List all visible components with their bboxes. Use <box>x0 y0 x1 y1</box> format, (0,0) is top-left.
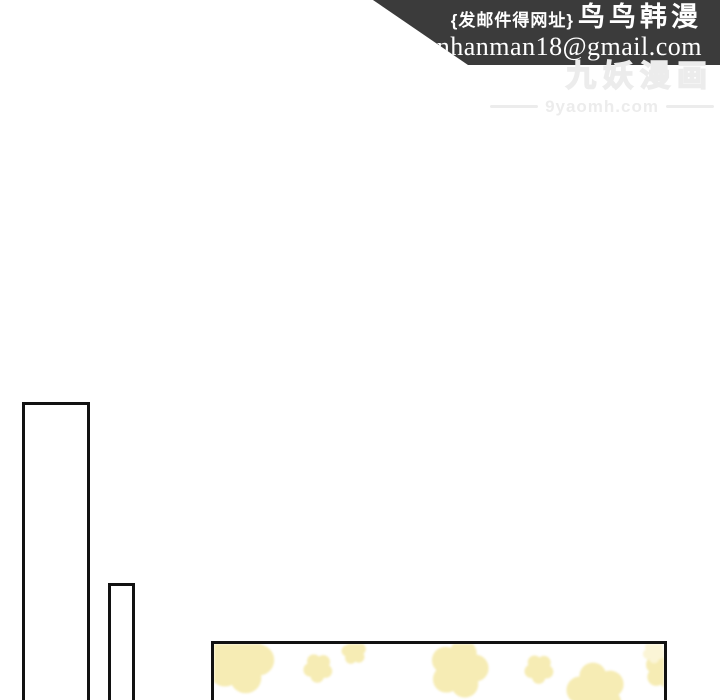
watermark-site-row: 9yaomh.com <box>490 98 714 115</box>
site-watermark: 九妖漫画 9yaomh.com <box>490 60 714 115</box>
watermark-title: 九妖漫画 <box>490 60 714 93</box>
banner-publisher-name: 鸟鸟韩漫 <box>578 4 702 31</box>
comic-page: {发邮件得网址} 鸟鸟韩漫 nnhanman18@gmail.com 九妖漫画 … <box>0 0 720 700</box>
watermark-site-url: 9yaomh.com <box>545 98 659 115</box>
flower-pattern-svg <box>214 644 664 700</box>
publisher-banner: {发邮件得网址} 鸟鸟韩漫 nnhanman18@gmail.com <box>360 0 720 65</box>
watermark-dash-left <box>490 105 538 108</box>
lineart-small-rectangle <box>108 583 135 700</box>
banner-headline: {发邮件得网址} 鸟鸟韩漫 <box>451 4 702 31</box>
banner-note-text: {发邮件得网址} <box>451 12 574 29</box>
blanket-panel <box>211 641 667 700</box>
watermark-dash-right <box>666 105 714 108</box>
lineart-tall-rectangle <box>22 402 90 700</box>
banner-email-text: nnhanman18@gmail.com <box>423 33 702 60</box>
